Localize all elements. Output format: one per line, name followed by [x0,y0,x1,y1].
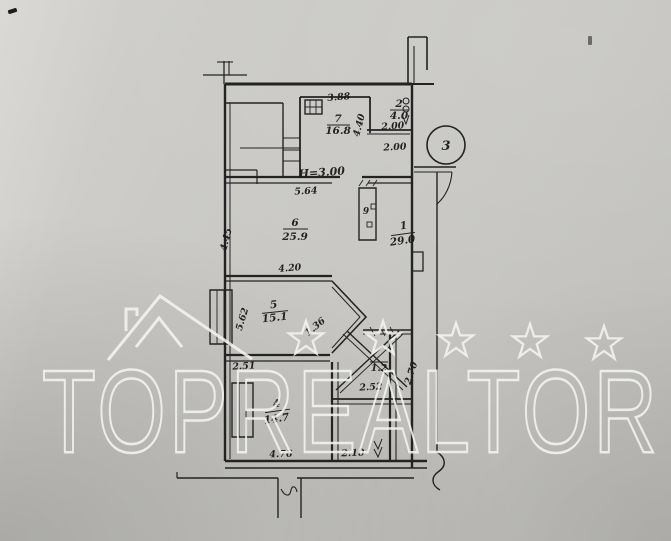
balcony-number: 3 [441,139,450,154]
room7-area: 16.8 [325,125,351,137]
scan-artifact [588,36,592,45]
folding-door [332,281,366,353]
wall-pilaster [210,290,232,344]
room6-number: 6 [291,217,299,229]
room1-number: 1 [399,220,408,233]
watermark: TOPREALTOR [42,296,660,478]
room7-number: 7 [334,113,342,125]
vent-shaft-icon [305,100,322,114]
dim-3-88: 3.88 [327,91,351,104]
dim-5-62: 5.62 [234,306,251,332]
dim-1-36: 1.36 [303,315,328,339]
entrance-squiggle [281,487,297,495]
floor-plan-drawing: 3.88716.84.4024.02.002.003Н=3.005.644.45… [0,0,671,541]
dim-2-00-b: 2.00 [382,141,407,153]
dim-5-64: 5.64 [294,185,318,197]
shaft-number: 9 [363,207,370,217]
dim-4-20: 4.20 [278,262,302,275]
room5-area: 15.1 [261,311,288,326]
watermark-text: TOPREALTOR [42,346,660,478]
entrance-porch [177,472,414,518]
dim-2-00-a: 2.00 [380,120,405,133]
dim-4-45: 4.45 [218,226,234,251]
height-note: Н=3.00 [297,164,346,180]
dim-4-40: 4.40 [351,112,368,138]
scanned-floorplan-photo: 3.88716.84.4024.02.002.003Н=3.005.644.45… [0,0,671,541]
room2-number: 2 [394,98,402,110]
room5-number: 5 [269,299,278,312]
room6-area: 25.9 [281,231,308,243]
